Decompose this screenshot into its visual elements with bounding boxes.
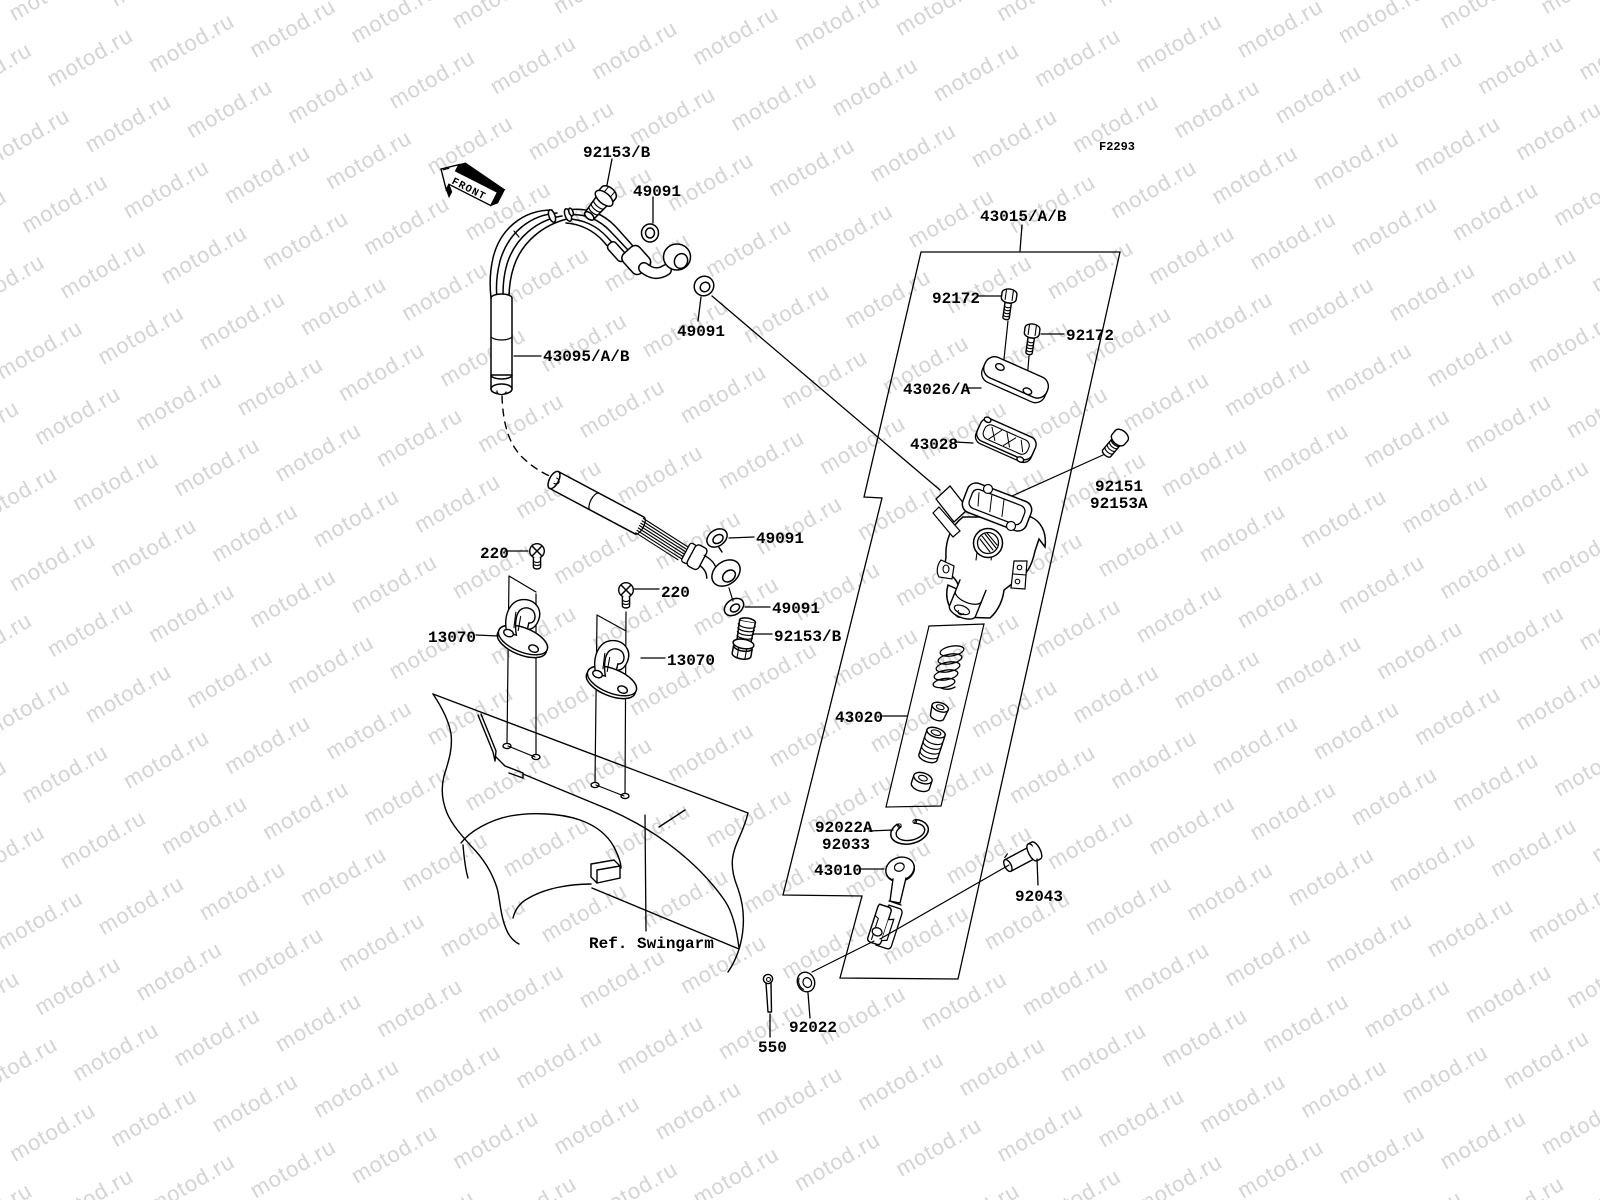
svg-text:220: 220 — [661, 584, 690, 602]
svg-text:92043: 92043 — [1015, 888, 1063, 906]
svg-text:F2293: F2293 — [1099, 140, 1135, 154]
svg-text:92172: 92172 — [1066, 327, 1114, 345]
svg-text:92022A: 92022A — [815, 819, 873, 837]
svg-text:43026/A: 43026/A — [903, 381, 971, 399]
svg-text:92151: 92151 — [1095, 478, 1143, 496]
svg-text:13070: 13070 — [428, 629, 476, 647]
svg-text:92172: 92172 — [932, 290, 980, 308]
svg-text:92033: 92033 — [822, 836, 870, 854]
svg-text:49091: 49091 — [633, 183, 681, 201]
svg-text:92022: 92022 — [789, 1019, 837, 1037]
svg-text:92153/B: 92153/B — [774, 628, 842, 646]
svg-text:43095/A/B: 43095/A/B — [543, 348, 630, 366]
svg-text:92153/B: 92153/B — [583, 144, 651, 162]
svg-text:43020: 43020 — [835, 709, 883, 727]
svg-text:49091: 49091 — [772, 600, 820, 618]
svg-text:550: 550 — [758, 1039, 787, 1057]
svg-text:49091: 49091 — [756, 530, 804, 548]
svg-text:92153A: 92153A — [1090, 495, 1148, 513]
svg-text:43028: 43028 — [910, 436, 958, 454]
svg-text:43015/A/B: 43015/A/B — [980, 208, 1067, 226]
svg-text:43010: 43010 — [814, 862, 862, 880]
svg-text:220: 220 — [480, 545, 509, 563]
svg-text:13070: 13070 — [667, 652, 715, 670]
svg-text:49091: 49091 — [677, 323, 725, 341]
svg-text:Ref. Swingarm: Ref. Swingarm — [589, 935, 714, 953]
